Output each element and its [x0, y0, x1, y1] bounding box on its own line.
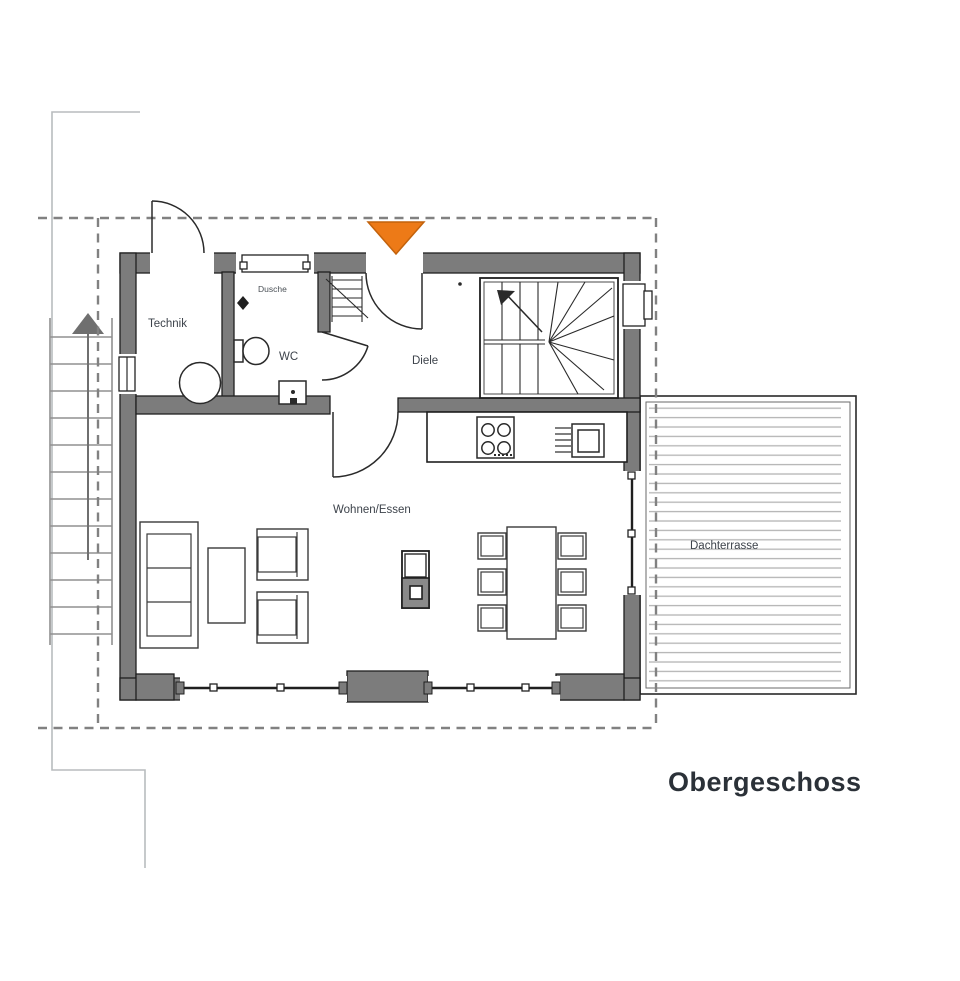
washbasin	[279, 381, 306, 404]
dining-table	[507, 527, 556, 639]
pier-bottom-right	[556, 674, 624, 700]
floor-title: Obergeschoss	[668, 767, 862, 797]
dining-furniture	[478, 527, 586, 639]
label-wc: WC	[279, 351, 298, 363]
technik-exterior-door	[152, 201, 204, 253]
kitchen-counter	[427, 412, 627, 462]
ceiling-point	[458, 282, 462, 286]
technik-window	[119, 357, 135, 391]
label-dusche: Dusche	[258, 284, 287, 294]
dining-chairs-right	[558, 533, 586, 631]
floorplan-page: Technik Dusche WC Diele Wohnen/Essen Dac…	[0, 0, 960, 981]
label-wohnen-essen: Wohnen/Essen	[333, 504, 411, 516]
label-technik: Technik	[148, 318, 187, 330]
bathroom-door	[322, 332, 368, 380]
exterior-stair-treads	[50, 330, 112, 642]
dining-chairs-left	[478, 533, 506, 631]
coffee-table	[208, 548, 245, 623]
living-room-door	[333, 412, 398, 477]
entrance-door	[366, 273, 422, 329]
label-diele: Diele	[412, 355, 438, 367]
exterior-staircase	[50, 313, 112, 645]
armchair-1	[257, 529, 308, 580]
wall-left	[120, 253, 136, 700]
door-marker-icon	[237, 296, 249, 310]
pier-bottom-left	[136, 674, 174, 700]
wall-technik-bath	[222, 272, 234, 400]
armchair-2	[257, 592, 308, 643]
label-dachterrasse: Dachterrasse	[690, 540, 758, 552]
toilet	[234, 338, 269, 365]
hall-steps	[326, 276, 368, 322]
pier-bottom-center	[347, 671, 428, 702]
sofa	[140, 522, 198, 648]
wall-hall-living	[398, 398, 640, 412]
floorplan-drawing: Technik Dusche WC Diele Wohnen/Essen Dac…	[0, 0, 960, 981]
doors	[152, 201, 422, 477]
main-staircase	[480, 278, 618, 398]
boiler	[180, 363, 221, 404]
cooktop	[477, 417, 514, 458]
entrance-triangle-icon	[368, 222, 424, 254]
living-furniture	[140, 522, 429, 648]
wood-stove	[402, 551, 429, 608]
shower-window	[240, 255, 310, 272]
